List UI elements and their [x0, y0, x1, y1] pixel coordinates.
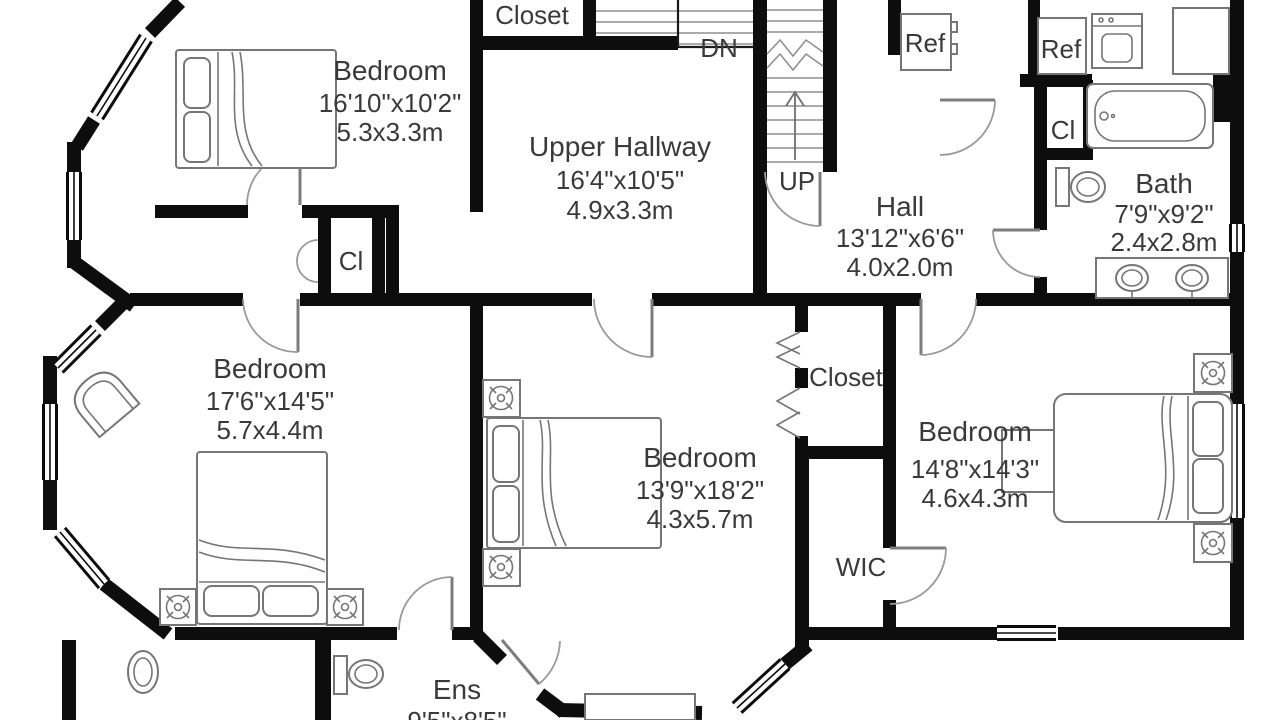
- window: [737, 664, 785, 708]
- room-metric: 4.9x3.3m: [567, 195, 674, 225]
- door-bedroom-middle: [594, 299, 652, 357]
- room-name: Ens: [433, 674, 481, 705]
- toilet-icon: [334, 656, 383, 694]
- bench: [585, 694, 695, 720]
- room-label-bedroom-right: Bedroom 14'8"x14'3" 4.6x4.3m: [911, 416, 1039, 513]
- room-label-bedroom-top-left: Bedroom 16'10"x10'2" 5.3x3.3m: [319, 55, 462, 147]
- room-metric: 4.0x2.0m: [847, 252, 954, 282]
- room-imperial: 16'10"x10'2": [319, 88, 462, 118]
- label-closet-right: Closet: [809, 362, 883, 392]
- room-metric: 4.6x4.3m: [922, 483, 1029, 513]
- door-ensuite: [399, 577, 452, 630]
- label-wic: WIC: [836, 552, 887, 582]
- room-name: Bedroom: [213, 353, 327, 384]
- nightstand: [160, 589, 196, 625]
- room-name: Bedroom: [643, 442, 757, 473]
- room-imperial: 16'4"x10'5": [556, 165, 684, 195]
- bed: [1054, 394, 1232, 522]
- window: [58, 330, 96, 368]
- counter: [1173, 8, 1229, 74]
- label-stairs-up: UP: [779, 166, 815, 196]
- label-closet-top: Closet: [495, 0, 569, 30]
- room-label-bath: Bath 7'9"x9'2" 2.4x2.8m: [1111, 168, 1218, 257]
- label-ref-hall: Ref: [905, 28, 946, 58]
- door-bedroom-left: [243, 299, 298, 352]
- room-imperial: 17'6"x14'5": [206, 386, 334, 416]
- bathtub-icon: [1087, 84, 1213, 148]
- room-label-hall: Hall 13'12"x6'6" 4.0x2.0m: [836, 191, 964, 282]
- door-bay-middle: [502, 640, 560, 684]
- door-closet-left: [297, 240, 318, 282]
- room-label-bedroom-middle: Bedroom 13'9"x18'2" 4.3x5.7m: [636, 442, 764, 534]
- room-name: Bedroom: [918, 416, 1032, 447]
- room-imperial: 13'9"x18'2": [636, 475, 764, 505]
- room-imperial: 14'8"x14'3": [911, 454, 1039, 484]
- room-metric: 2.4x2.8m: [1111, 227, 1218, 257]
- room-imperial: 7'9"x9'2": [1114, 199, 1213, 229]
- room-name: Hall: [876, 191, 924, 222]
- door-bedroom-right: [921, 299, 976, 355]
- room-label-ensuite: Ens 9'5"x8'5": [407, 674, 506, 720]
- stairs-up: [767, 10, 823, 162]
- nightstand: [1194, 354, 1232, 392]
- nightstand: [483, 380, 520, 417]
- window: [60, 532, 104, 584]
- bed: [197, 452, 327, 624]
- room-metric: 5.7x4.4m: [217, 415, 324, 445]
- door-wic: [890, 548, 946, 604]
- room-metric: 5.3x3.3m: [337, 117, 444, 147]
- bed: [176, 50, 336, 168]
- label-ref-laundry: Ref: [1041, 34, 1082, 64]
- floor-plan: Bedroom 16'10"x10'2" 5.3x3.3m Upper Hall…: [0, 0, 1280, 720]
- label-cl-bath: Cl: [1051, 115, 1076, 145]
- bed: [487, 418, 661, 548]
- door-laundry: [940, 100, 995, 155]
- toilet-icon: [1056, 168, 1105, 206]
- door-bath: [993, 230, 1040, 277]
- room-name: Upper Hallway: [529, 131, 711, 162]
- room-imperial: 9'5"x8'5": [407, 706, 506, 720]
- floor-plan-canvas: Bedroom 16'10"x10'2" 5.3x3.3m Upper Hall…: [0, 0, 1280, 720]
- room-name: Bath: [1135, 168, 1193, 199]
- nightstand: [483, 549, 520, 586]
- washer-icon: [1092, 14, 1142, 68]
- room-metric: 4.3x5.7m: [647, 504, 754, 534]
- armchair: [66, 364, 139, 437]
- window: [97, 38, 146, 116]
- label-cl-left: Cl: [339, 246, 364, 276]
- room-name: Bedroom: [333, 55, 447, 86]
- nightstand: [327, 589, 363, 625]
- room-label-upper-hallway: Upper Hallway 16'4"x10'5" 4.9x3.3m: [529, 131, 711, 225]
- label-stairs-down: DN: [700, 33, 738, 63]
- room-imperial: 13'12"x6'6": [836, 223, 964, 253]
- nightstand: [1194, 524, 1232, 562]
- sink-icon: [128, 651, 158, 693]
- vanity-double-sink: [1096, 258, 1228, 298]
- room-label-bedroom-left: Bedroom 17'6"x14'5" 5.7x4.4m: [206, 353, 334, 445]
